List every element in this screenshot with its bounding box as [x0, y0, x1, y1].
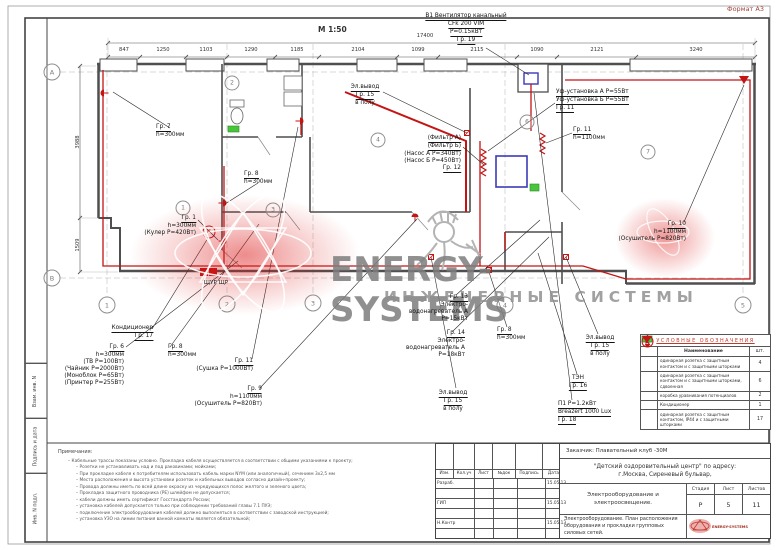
callout-text: (Чайник P=2000Вт)	[65, 366, 124, 372]
symbol-letter: К	[207, 229, 211, 235]
callout-text: Гр. 8	[497, 327, 512, 335]
legend-header: Наименование шт.	[641, 347, 770, 357]
side-stamp-cell: Подпись и дата	[25, 418, 47, 474]
address-line-1: "Детский оздоровительный центр" по адрес…	[560, 463, 770, 471]
callout-text: h=1100мм	[230, 394, 262, 400]
sink	[228, 126, 239, 132]
callout-line: (Чайник P=2000Вт)	[64, 366, 124, 373]
signature-table-top	[436, 444, 559, 470]
callout-line: h=300мм	[64, 352, 124, 359]
dimension-label: 2121	[590, 47, 603, 53]
callout-text: Гр. 9	[247, 386, 262, 394]
callout-text: Гр. 6	[109, 344, 124, 352]
socket-icon	[296, 118, 304, 125]
callout-text: Эл.вывод	[439, 390, 468, 398]
callout-line: Breazert 1000 Lux	[558, 409, 611, 417]
socket-single-icon	[641, 357, 658, 371]
dimension-label: 1290	[244, 47, 257, 53]
company-stamp-icon	[687, 515, 713, 537]
callout-text: (Осушитель P=820Вт)	[619, 236, 686, 242]
dimension-label: 1099	[411, 47, 424, 53]
callout: Гр. 1h=300мм(Кулер P=420Вт)	[144, 215, 196, 237]
legend-item-name: одинарная розетка с защитным контактом, …	[658, 410, 749, 429]
callout-line: В1 Вентилятор канальный	[425, 13, 506, 21]
callout: Эл.выводГр. 15в полу	[586, 335, 615, 358]
legend-item-name: одинарная розетка с защитным контактом и…	[658, 372, 749, 391]
signature-rows: Разраб.15.05.13ГИП15.05.13Н.Контр15.05.1…	[436, 479, 559, 538]
callout-text: ТЭН	[572, 375, 584, 383]
scale-label: М 1:50	[318, 25, 347, 34]
dimension-label: 2104	[351, 47, 364, 53]
callout-line: (Принтер P=255Вт)	[64, 380, 124, 387]
callout-text: Гр. 15	[356, 92, 374, 100]
sig-cell	[518, 519, 546, 528]
callout: П1 P=1.2кВтBreazert 1000 LuxГр. 18	[558, 401, 611, 425]
legend-row: Кондиционер1	[641, 401, 770, 410]
callout-line: P=15кВт	[409, 316, 468, 323]
sig-header-cell: Подпись	[516, 470, 543, 478]
legend-item-qty: 1	[749, 401, 770, 409]
callout-text: h=300мм	[156, 132, 184, 138]
callout-line: (Фильтр А)	[404, 135, 461, 143]
sig-role	[436, 509, 475, 518]
heater-coil-icon	[481, 149, 486, 176]
callout: Гр. 7h=300мм	[156, 124, 184, 139]
callout-line: h=1100мм	[619, 229, 686, 236]
callout-line: Гр. 17	[111, 333, 153, 341]
signature-row	[436, 529, 559, 538]
callout-line: Гр. 19	[425, 37, 506, 45]
callout-line: (Насос Б P=450Вт)	[404, 158, 461, 165]
callout-line: Гр. 7	[156, 124, 184, 132]
callout: Гр. 13Электро-водонагреватель АP=15кВт	[409, 294, 468, 323]
legend-item-qty: 2	[749, 392, 770, 400]
side-stamp-label: Инв. N подл.	[34, 493, 39, 525]
callout-text: h=300мм	[168, 223, 196, 229]
callout-text: Электро-	[440, 302, 468, 308]
callout-line: (Осушитель P=820Вт)	[619, 236, 686, 243]
callout-text: (Насос А P=340Вт)	[404, 151, 461, 157]
callout-line: h=300мм	[244, 179, 272, 186]
callout-text: Гр. 7	[156, 124, 171, 132]
sig-cell	[518, 479, 546, 488]
sheets-label: Листов	[743, 484, 770, 494]
callout-line: П1 P=1.2кВт	[558, 401, 611, 409]
callout-text: h=300мм	[244, 179, 272, 185]
stage-value: Р	[687, 495, 715, 514]
callout-line: (Моноблок P=65Вт)	[64, 373, 124, 380]
callout-line: Гр. 12	[404, 165, 461, 173]
sheets-total: 11	[743, 495, 770, 514]
callout-text: (Сушка P=1000Вт)	[196, 366, 253, 372]
sheet-format-label: Формат А3	[727, 5, 764, 13]
callout-text: Уф-установка А P=55Вт	[556, 89, 629, 97]
sig-cell	[475, 489, 494, 498]
callout-text: (Моноблок P=65Вт)	[64, 373, 124, 379]
callout-text: водонагреватель А	[406, 345, 465, 351]
callout-text: Гр. 15	[444, 398, 462, 406]
callout-text: (Насос Б P=450Вт)	[404, 158, 461, 164]
dimension-label: 1103	[199, 47, 212, 53]
stage-table: Стадия Лист Листов Р 5 11	[687, 484, 770, 514]
heater-coil-icon	[540, 133, 545, 154]
drawing-sheet: ENERGY-SYSTEMS ИНЖЕНЕРНЫЕ СИСТЕМЫ Формат…	[0, 0, 778, 550]
room-number: 1	[176, 201, 191, 216]
room-number: 7	[641, 145, 656, 160]
sig-cell	[518, 509, 546, 518]
callout-text: P=18кВт	[438, 352, 465, 358]
axis-column-marker: 2	[219, 296, 236, 313]
callout-text: Гр. 10	[668, 221, 686, 229]
callout-line: Электро-	[406, 338, 465, 345]
callout-line: Гр. 8	[497, 327, 525, 335]
potential-box	[530, 184, 539, 191]
callout-text: Гр. 8	[244, 171, 259, 179]
address-line-2: г.Москва, Сиреневый бульвар,	[560, 471, 770, 479]
callout-line: Гр. 15	[439, 398, 468, 406]
dimension-label: 1185	[290, 47, 303, 53]
callout-text: Электро-	[437, 338, 465, 344]
dimension-label: 1090	[530, 47, 543, 53]
legend-name-header: Наименование	[658, 347, 749, 356]
callout-text: в полу	[590, 351, 610, 357]
callout: Эл.выводГр. 15в полу	[351, 84, 380, 107]
sig-cell	[518, 529, 546, 538]
toilet-tank	[230, 100, 244, 107]
callout-text: h=1100мм	[573, 135, 605, 141]
note-item: – установка УЗО на линии питания ванной …	[76, 517, 434, 523]
callout-text: Breazert 1000 Lux	[558, 409, 611, 417]
vent-shaft	[518, 64, 548, 92]
sig-cell	[494, 509, 518, 518]
callout-text: (ТВ P=100Вт)	[83, 359, 124, 365]
callout-text: (Осушитель P=820Вт)	[195, 401, 262, 407]
sig-role: ГИП	[436, 499, 475, 508]
callout: Гр. 11h=1100мм	[573, 127, 605, 142]
callout-text: h=300мм	[168, 352, 196, 358]
callout-text: Кондиционер	[111, 325, 153, 333]
sheet-number: 5	[715, 495, 743, 514]
callout-line: h=300мм	[144, 223, 196, 230]
axis-column-marker: 4	[497, 297, 514, 314]
dimension-label-vertical: 3988	[75, 135, 81, 148]
legend-row: одинарная розетка с защитным контактом и…	[641, 372, 770, 392]
socket-double-icon	[641, 372, 658, 391]
callout-line: (Кулер P=420Вт)	[144, 230, 196, 237]
callout-line: Уф-установка Б P=55Вт	[556, 97, 629, 105]
cable-routes	[103, 70, 750, 279]
callout: Гр. 8h=300мм	[168, 344, 196, 359]
sig-cell	[494, 529, 518, 538]
axis-column-marker: 1	[99, 297, 116, 314]
signature-table: Изм.Кол.учЛист№докПодписьДата Разраб.15.…	[436, 444, 560, 538]
callout-text: Гр. 16	[569, 383, 587, 391]
callout-text: Гр. 11	[235, 358, 253, 366]
callout-line: h=300мм	[156, 132, 184, 139]
callout-line: Гр. 13	[409, 294, 468, 302]
callout-line: h=300мм	[168, 352, 196, 359]
callout-line: Электро-	[409, 302, 468, 309]
signature-row: ГИП15.05.13	[436, 499, 559, 509]
dimension-label: 3240	[689, 47, 702, 53]
callout-line: Эл.вывод	[439, 390, 468, 398]
legend-item-qty: 6	[749, 372, 770, 391]
sig-header-cell: №док	[493, 470, 516, 478]
signature-row	[436, 509, 559, 519]
document-subtitle: Электрооборудование. План расположения о…	[560, 515, 687, 538]
sig-cell	[494, 489, 518, 498]
callout-line: в полу	[351, 100, 380, 107]
callout-text: P=15кВт	[441, 316, 468, 322]
callout-line: в полу	[439, 406, 468, 413]
room-number: 6	[520, 115, 535, 130]
dimension-label: 1250	[156, 47, 169, 53]
sig-role: Н.Контр	[436, 519, 475, 528]
notes-block: Примечания: – Кабельные трассы показаны …	[48, 444, 434, 536]
callout-text: в полу	[443, 406, 463, 412]
sig-cell	[494, 499, 518, 508]
axis-column-marker: 5	[735, 297, 752, 314]
callout-text: h=300мм	[497, 335, 525, 341]
callout: Гр. 11(Сушка P=1000Вт)	[196, 358, 253, 373]
callout-line: (Насос А P=340Вт)	[404, 151, 461, 158]
sig-cell	[494, 519, 518, 528]
sig-header-cell: Кол.уч	[454, 470, 475, 478]
callout-text: Гр. 1	[181, 215, 196, 223]
callout-text: Гр. 11	[556, 105, 574, 113]
signature-row: Н.Контр15.05.13	[436, 519, 559, 529]
signature-row: Разраб.15.05.13	[436, 479, 559, 489]
notes-title: Примечания:	[58, 449, 434, 455]
side-stamp-label: Подпись и дата	[34, 427, 39, 467]
side-stamp-cell: Инв. N подл.	[25, 473, 47, 543]
sheet-label: Лист	[715, 484, 743, 494]
sig-role	[436, 529, 475, 538]
callout-line: Гр. 11	[196, 358, 253, 366]
dimension-label: 2115	[470, 47, 483, 53]
callout-line: P=18кВт	[406, 352, 465, 359]
sig-header-cell: Изм.	[436, 470, 454, 478]
callout-line: (Сушка P=1000Вт)	[196, 366, 253, 373]
callout-line: Гр. 1	[144, 215, 196, 223]
legend-title: УСЛОВНЫЕ ОБОЗНАЧЕНИЯ	[641, 335, 770, 347]
callout-text: h=1100мм	[654, 229, 686, 235]
callout-line: Уф-установка А P=55Вт	[556, 89, 629, 97]
callout-line: водонагреватель А	[409, 309, 468, 316]
legend-item-name: одинарная розетка с защитным контактом и…	[658, 357, 749, 371]
callout-line: h=1100мм	[195, 394, 262, 401]
sig-cell	[494, 479, 518, 488]
title-block: Изм.Кол.учЛист№докПодписьДата Разраб.15.…	[435, 443, 771, 539]
sig-cell	[475, 519, 494, 528]
callout-text: (Кулер P=420Вт)	[144, 230, 196, 236]
notes-list: – Кабельные трассы показаны условно. Про…	[48, 459, 434, 523]
callout-line: Гр. 10	[619, 221, 686, 229]
legend-rows: одинарная розетка с защитным контактом и…	[641, 357, 770, 429]
room-number: 2	[225, 76, 240, 91]
callout-text: Гр. 18	[558, 417, 576, 425]
callout-text: (Фильтр А)	[428, 135, 461, 143]
axis-column-marker: 3	[305, 295, 322, 312]
document-title: Электрооборудование и электроосвещение.	[560, 484, 687, 514]
callout-text: Гр. 12	[443, 165, 461, 173]
socket-icon	[412, 214, 419, 222]
callout-text: Эл.вывод	[586, 335, 615, 343]
callout-line: Гр. 8	[168, 344, 196, 352]
stage-label: Стадия	[687, 484, 715, 494]
callout: Гр. 6h=300мм(ТВ P=100Вт)(Чайник P=2000Вт…	[64, 344, 124, 387]
callout-text: P=0.15кВт	[450, 29, 482, 37]
company-stamp: ENERGY-SYSTEMS	[687, 515, 770, 538]
sig-cell	[475, 479, 494, 488]
legend-symbol-column	[641, 347, 658, 356]
callout-line: h=1100мм	[573, 135, 605, 142]
fixtures	[228, 73, 539, 191]
callout: КондиционерГр. 17	[111, 325, 153, 341]
sig-role	[436, 489, 475, 498]
callout-text: (Фильтр Б)	[428, 143, 461, 151]
callout-text: h=300мм	[96, 352, 124, 358]
conditioner-icon	[641, 401, 658, 409]
legend-row: коробка уравнивания потенциалов2	[641, 392, 770, 401]
callout-line: (Фильтр Б)	[404, 143, 461, 151]
sig-cell	[518, 499, 546, 508]
callout-text: в полу	[355, 100, 375, 106]
project-address: "Детский оздоровительный центр" по адрес…	[560, 459, 770, 484]
callout-text: Эл.вывод	[351, 84, 380, 92]
callout-line: Гр. 9	[195, 386, 262, 394]
customer-row: Заказчик: Плавательный клуб -30М	[560, 444, 770, 459]
room-number: 3	[266, 203, 281, 218]
callout-line: Гр. 18	[558, 417, 611, 425]
callout-text: П1 P=1.2кВт	[558, 401, 596, 409]
sig-role: Разраб.	[436, 479, 475, 488]
legend-table: УСЛОВНЫЕ ОБОЗНАЧЕНИЯ Наименование шт. од…	[640, 334, 771, 430]
callout: (Фильтр А)(Фильтр Б)(Насос А P=340Вт)(На…	[404, 135, 461, 173]
side-stamp-label: Взам. инв. N	[34, 376, 39, 407]
callout-line: Эл.вывод	[351, 84, 380, 92]
callout: Уф-установка А P=55ВтУф-установка Б P=55…	[556, 89, 629, 113]
callout-line: (Осушитель P=820Вт)	[195, 401, 262, 408]
signature-row	[436, 489, 559, 499]
callout: Гр. 8h=300мм	[244, 171, 272, 186]
sig-cell	[475, 509, 494, 518]
electrical-symbols	[101, 76, 750, 276]
callout-line: Гр. 15	[586, 343, 615, 351]
callout-line: Эл.вывод	[586, 335, 615, 343]
dimension-label-vertical: 1509	[75, 238, 81, 251]
callout-line: Гр. 6	[64, 344, 124, 352]
callout-line: Гр. 16	[569, 383, 587, 391]
side-stamp: Взам. инв. NПодпись и датаИнв. N подл.	[25, 18, 47, 542]
callout-line: CFk 200 VIM	[425, 21, 506, 29]
callout-line: Гр. 14	[406, 330, 465, 338]
room-number: 4	[371, 133, 386, 148]
dimension-label: 847	[119, 47, 129, 53]
callout-text: водонагреватель А	[409, 309, 468, 315]
callout: Эл.выводГр. 15в полу	[439, 390, 468, 413]
legend-qty-header: шт.	[749, 347, 770, 356]
pool-basin	[496, 156, 527, 187]
callout-line: h=300мм	[497, 335, 525, 342]
socket-icon	[101, 90, 109, 97]
callout-line: Кондиционер	[111, 325, 153, 333]
legend-item-qty: 17	[749, 410, 770, 429]
callout-text: Гр. 19	[457, 37, 475, 45]
callout-text: Гр. 15	[591, 343, 609, 351]
callout: В1 Вентилятор канальныйCFk 200 VIMP=0.15…	[425, 13, 506, 45]
sig-cell	[475, 529, 494, 538]
callout-line: Гр. 11	[556, 105, 629, 113]
callout-line: Гр. 8	[244, 171, 272, 179]
callout-text: CFk 200 VIM	[448, 21, 484, 29]
callout: Гр. 10h=1100мм(Осушитель P=820Вт)	[619, 221, 686, 243]
sig-cell	[475, 499, 494, 508]
legend-row: одинарная розетка с защитным контактом и…	[641, 357, 770, 372]
callout-text: (Принтер P=255Вт)	[65, 380, 124, 386]
side-stamp-cell: Взам. инв. N	[25, 363, 47, 419]
panel-label: ЩУР ЩР	[204, 280, 228, 286]
callout-line: водонагреватель А	[406, 345, 465, 352]
company-stamp-text: ENERGY-SYSTEMS	[712, 525, 748, 529]
callout-line: в полу	[586, 351, 615, 358]
legend-item-name: Кондиционер	[658, 401, 749, 409]
callout-line: Гр. 11	[573, 127, 605, 135]
signature-header-row: Изм.Кол.учЛист№докПодписьДата	[436, 470, 559, 479]
callout-line: Гр. 15	[351, 92, 380, 100]
potential-box-icon	[641, 392, 658, 400]
callout-text: Гр. 13	[450, 294, 468, 302]
callout-text: Гр. 17	[135, 333, 153, 341]
callout-line: ТЭН	[569, 375, 587, 383]
socket-ip44-icon	[641, 410, 658, 429]
callout-text: В1 Вентилятор канальный	[425, 13, 506, 21]
callout-text: Уф-установка Б P=55Вт	[556, 97, 629, 105]
legend-row: одинарная розетка с защитным контактом, …	[641, 410, 770, 429]
callout-line: P=0.15кВт	[425, 29, 506, 37]
sig-header-cell: Лист	[475, 470, 493, 478]
callout-text: Гр. 8	[168, 344, 183, 352]
callout-text: Гр. 11	[573, 127, 591, 135]
callout-line: (ТВ P=100Вт)	[64, 359, 124, 366]
sig-cell	[518, 489, 546, 498]
callout-text: Гр. 14	[447, 330, 465, 338]
legend-item-name: коробка уравнивания потенциалов	[658, 392, 749, 400]
callout: Гр. 9h=1100мм(Осушитель P=820Вт)	[195, 386, 262, 408]
callout: Гр. 14Электро-водонагреватель АP=18кВт	[406, 330, 465, 359]
callout: Гр. 8h=300мм	[497, 327, 525, 342]
legend-item-qty: 4	[749, 357, 770, 371]
callout: ТЭНГр. 16	[569, 375, 587, 391]
toilet-bowl	[231, 108, 243, 124]
